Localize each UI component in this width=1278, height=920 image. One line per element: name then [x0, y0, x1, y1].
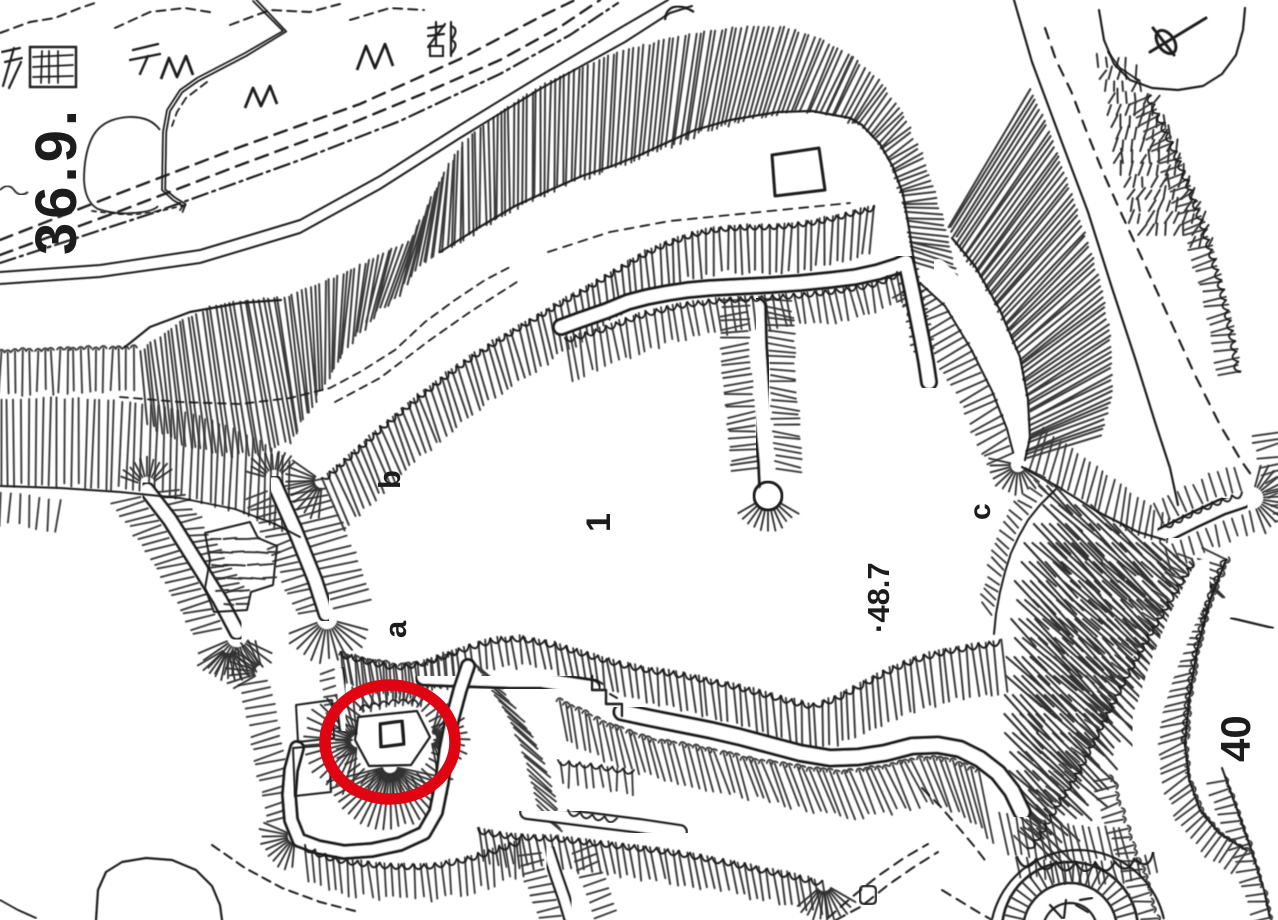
svg-text:a: a	[378, 620, 413, 638]
svg-text:40: 40	[1212, 715, 1259, 762]
svg-text:1: 1	[580, 513, 618, 532]
svg-text:·48.7: ·48.7	[861, 562, 896, 633]
svg-text:36.9.: 36.9.	[24, 106, 89, 255]
svg-text:b: b	[372, 470, 407, 489]
svg-text:c: c	[964, 503, 997, 520]
